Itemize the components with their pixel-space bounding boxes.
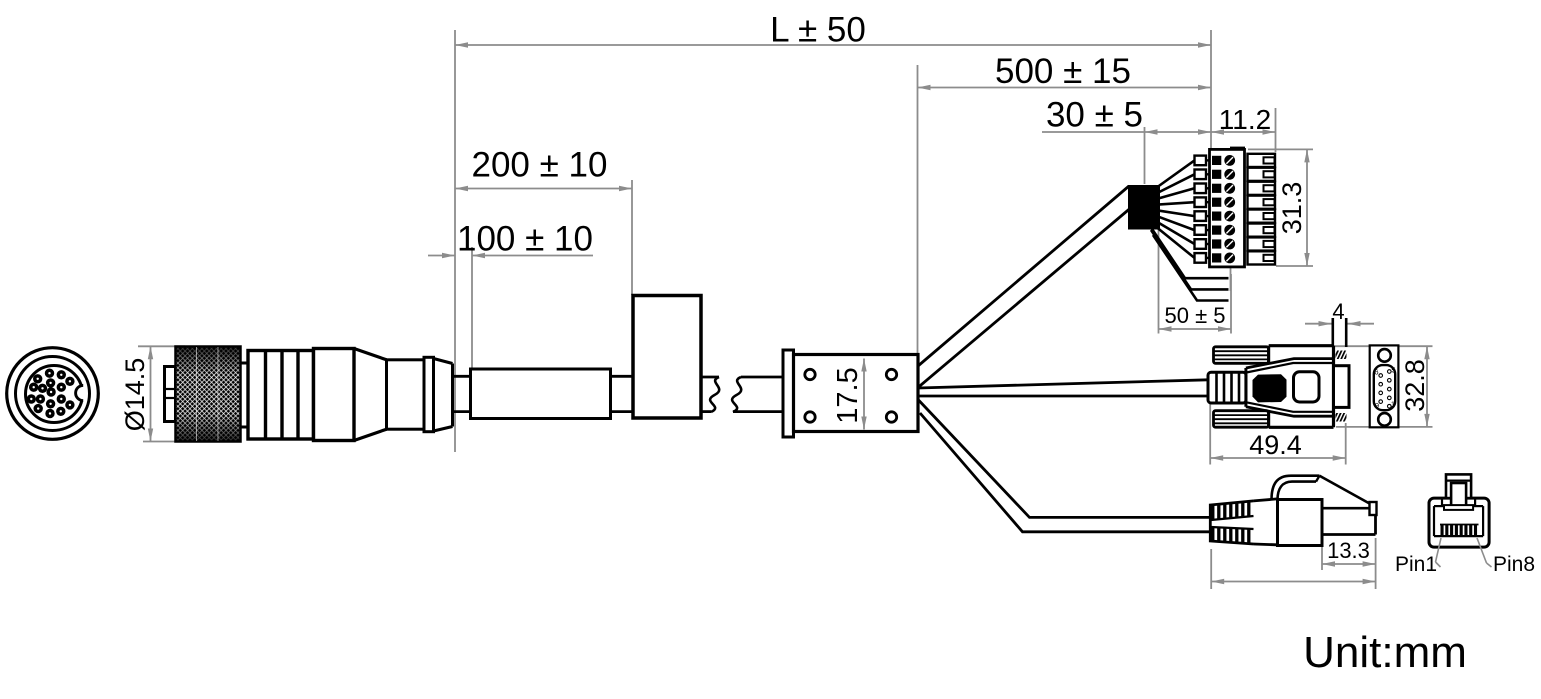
svg-text:6: 6 [1374, 368, 1378, 377]
svg-text:4: 4 [1332, 299, 1344, 324]
svg-text:1: 1 [1391, 400, 1395, 409]
svg-text:17.5: 17.5 [832, 367, 864, 423]
svg-text:Ø14.5: Ø14.5 [120, 358, 150, 432]
svg-text:49.4: 49.4 [1249, 430, 1302, 460]
svg-text:11.2: 11.2 [1219, 104, 1271, 135]
svg-text:31.3: 31.3 [1277, 182, 1307, 235]
svg-text:500 ± 15: 500 ± 15 [995, 52, 1131, 91]
svg-text:Pin8: Pin8 [1493, 553, 1535, 576]
svg-text:Pin1: Pin1 [1395, 553, 1437, 576]
svg-text:5: 5 [1391, 366, 1395, 375]
svg-text:200 ± 10: 200 ± 10 [472, 146, 608, 185]
svg-text:13.3: 13.3 [1327, 538, 1370, 563]
svg-text:Unit:mm: Unit:mm [1303, 628, 1467, 677]
svg-text:32.8: 32.8 [1400, 359, 1430, 412]
svg-text:30 ± 5: 30 ± 5 [1046, 96, 1143, 135]
svg-text:100 ± 10: 100 ± 10 [457, 220, 593, 259]
svg-text:L ± 50: L ± 50 [770, 11, 866, 50]
svg-text:9: 9 [1375, 401, 1379, 410]
svg-text:50 ± 5: 50 ± 5 [1164, 303, 1225, 328]
